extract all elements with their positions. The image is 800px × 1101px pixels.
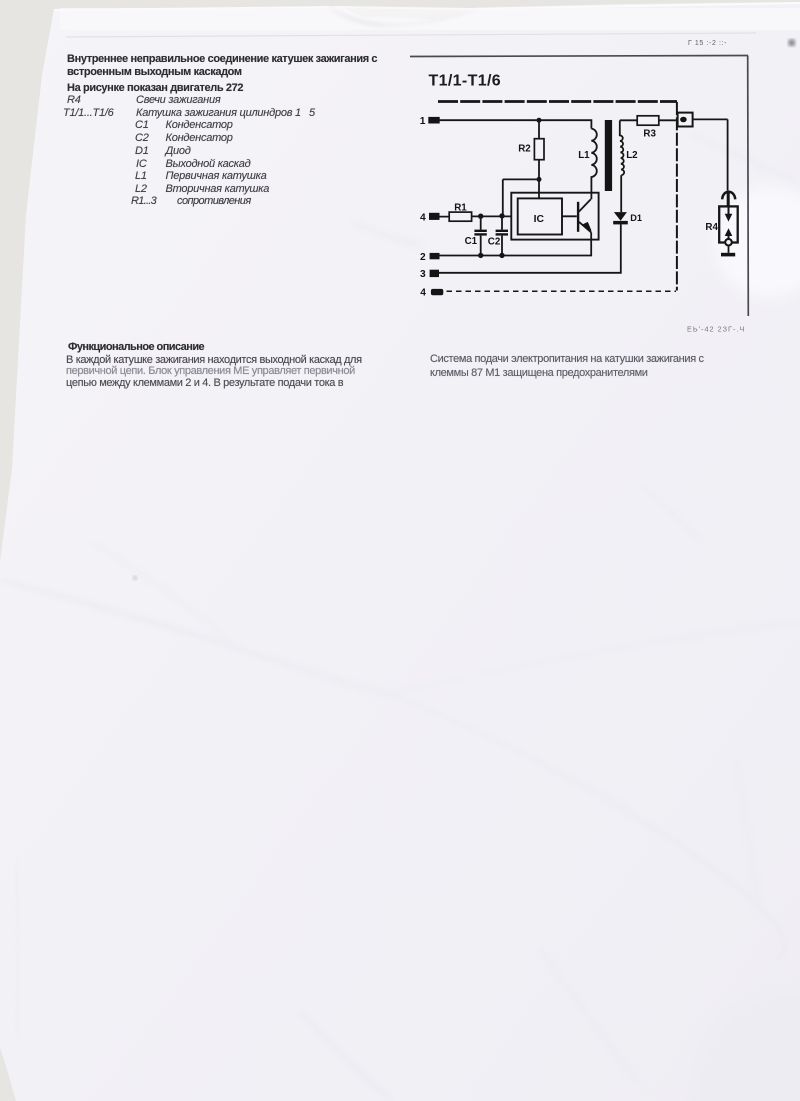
svg-text:4: 4 bbox=[420, 212, 426, 223]
svg-text:Г 15 :-2 ::-: Г 15 :-2 ::- bbox=[688, 40, 727, 47]
svg-text:ЕЬ'-42 2ЗГ-.Ч: ЕЬ'-42 2ЗГ-.Ч bbox=[687, 325, 745, 334]
svg-text:4: 4 bbox=[420, 287, 426, 298]
svg-text:IC: IC bbox=[534, 214, 545, 225]
svg-text:D1: D1 bbox=[630, 213, 642, 223]
svg-text:3: 3 bbox=[420, 269, 426, 280]
svg-text:R2: R2 bbox=[518, 143, 531, 154]
svg-text:L2: L2 bbox=[626, 150, 638, 161]
svg-text:C1: C1 bbox=[465, 236, 478, 247]
svg-text:1: 1 bbox=[420, 116, 426, 127]
svg-text:R4: R4 bbox=[705, 222, 718, 233]
svg-text:T1/1-T1/6: T1/1-T1/6 bbox=[429, 73, 502, 90]
svg-text:R3: R3 bbox=[643, 129, 656, 140]
svg-text:L1: L1 bbox=[578, 150, 590, 161]
svg-text:C2: C2 bbox=[488, 236, 501, 247]
svg-text:R1: R1 bbox=[454, 203, 467, 214]
svg-text:2: 2 bbox=[420, 252, 426, 263]
